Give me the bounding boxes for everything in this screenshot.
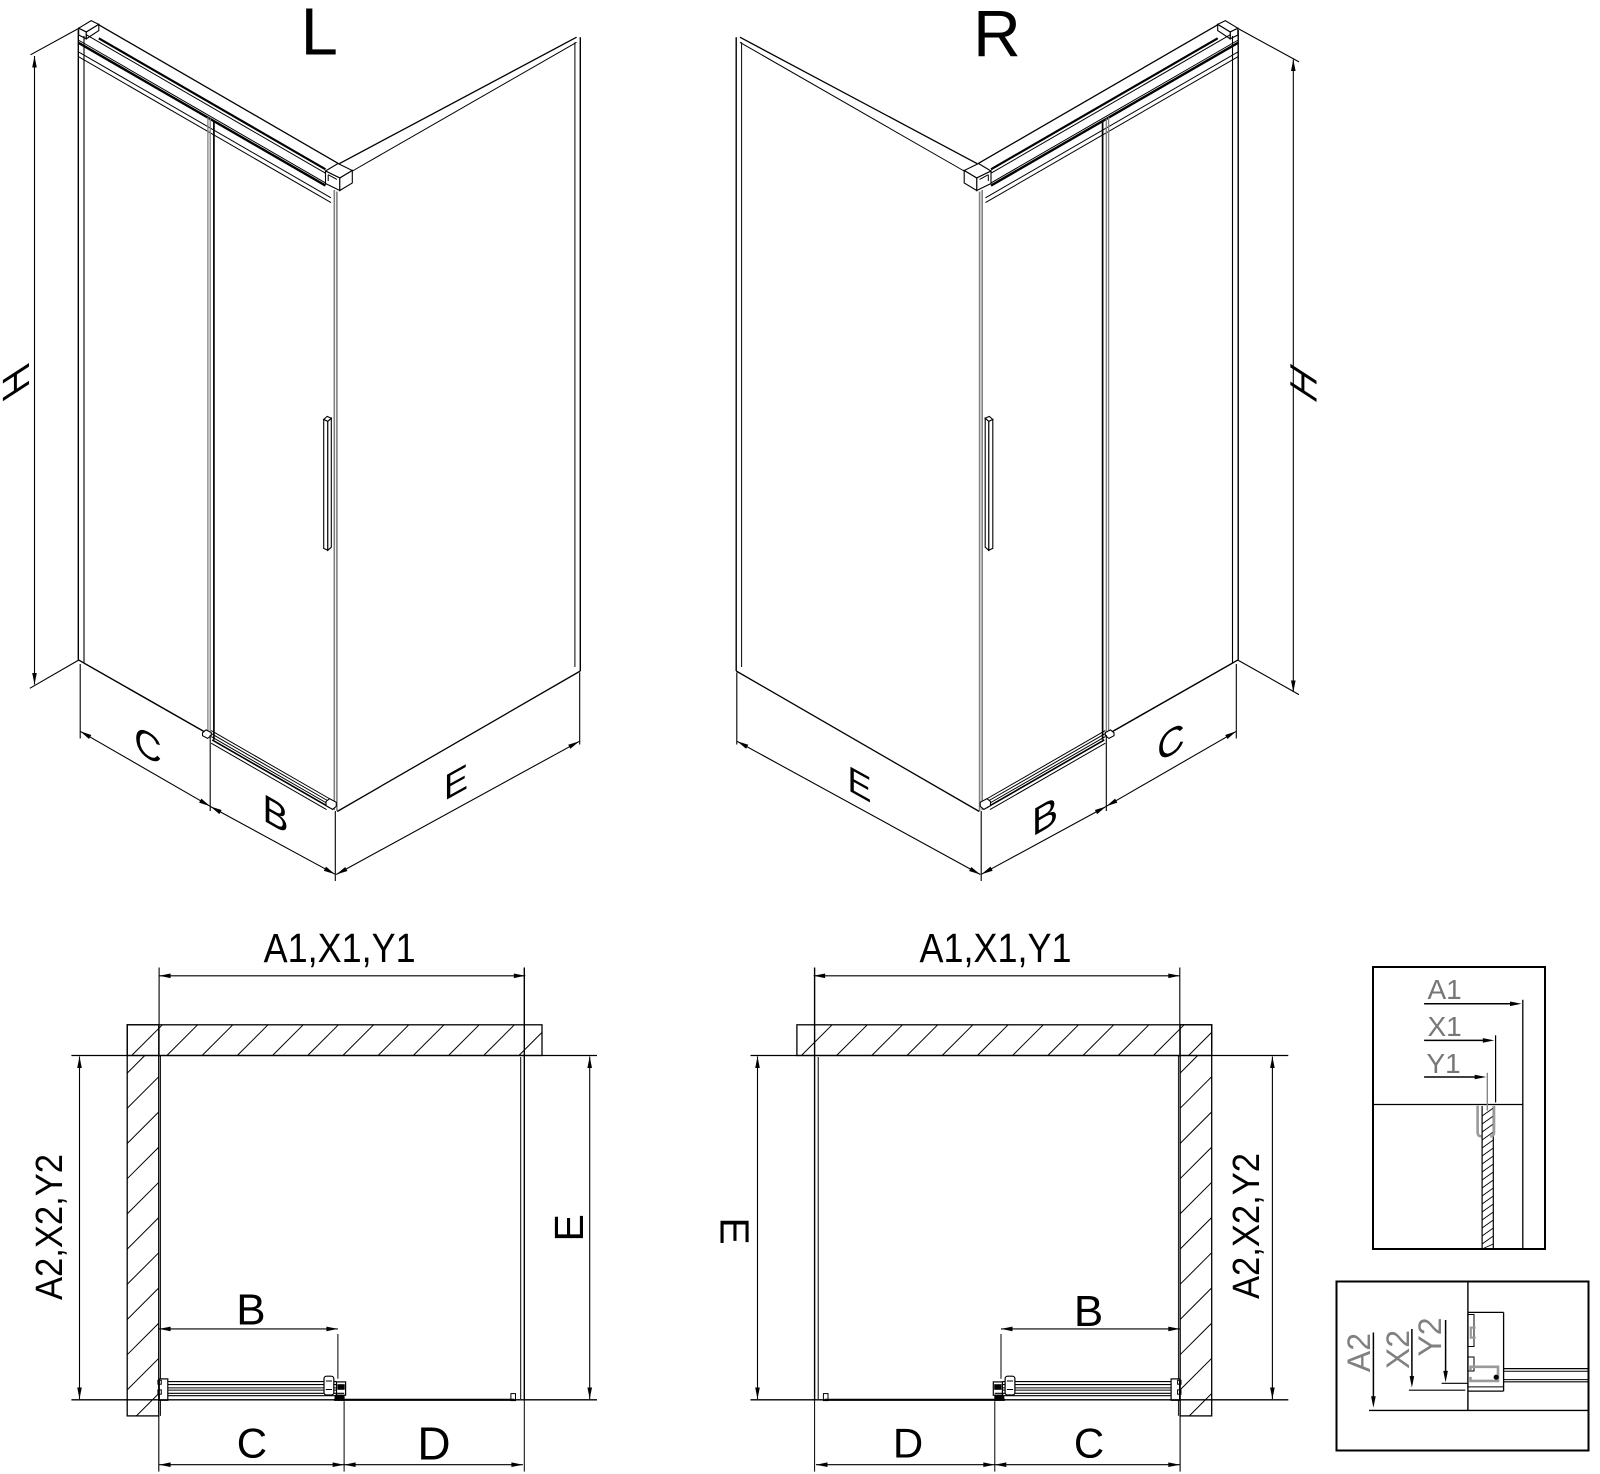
svg-text:B: B [1074, 1287, 1103, 1336]
svg-text:X1: X1 [1428, 1011, 1462, 1042]
svg-text:A2,X2,Y2: A2,X2,Y2 [29, 1154, 71, 1300]
svg-text:X2: X2 [1380, 1330, 1416, 1369]
svg-text:A2: A2 [1341, 1333, 1377, 1372]
svg-text:Y1: Y1 [1427, 1048, 1461, 1079]
svg-text:B: B [236, 1285, 265, 1334]
svg-text:D: D [893, 1420, 923, 1467]
svg-text:A1: A1 [1428, 974, 1462, 1005]
svg-text:R: R [973, 0, 1021, 70]
svg-text:C: C [237, 1420, 267, 1467]
svg-text:A1,X1,Y1: A1,X1,Y1 [920, 925, 1072, 971]
svg-text:E: E [546, 1214, 592, 1241]
svg-text:L: L [301, 0, 338, 70]
svg-text:E: E [712, 1217, 758, 1244]
svg-text:A1,X1,Y1: A1,X1,Y1 [264, 925, 416, 971]
svg-text:A2,X2,Y2: A2,X2,Y2 [1226, 1153, 1268, 1299]
svg-text:C: C [1074, 1420, 1104, 1467]
svg-text:D: D [417, 1418, 450, 1470]
svg-text:Y2: Y2 [1412, 1317, 1448, 1356]
